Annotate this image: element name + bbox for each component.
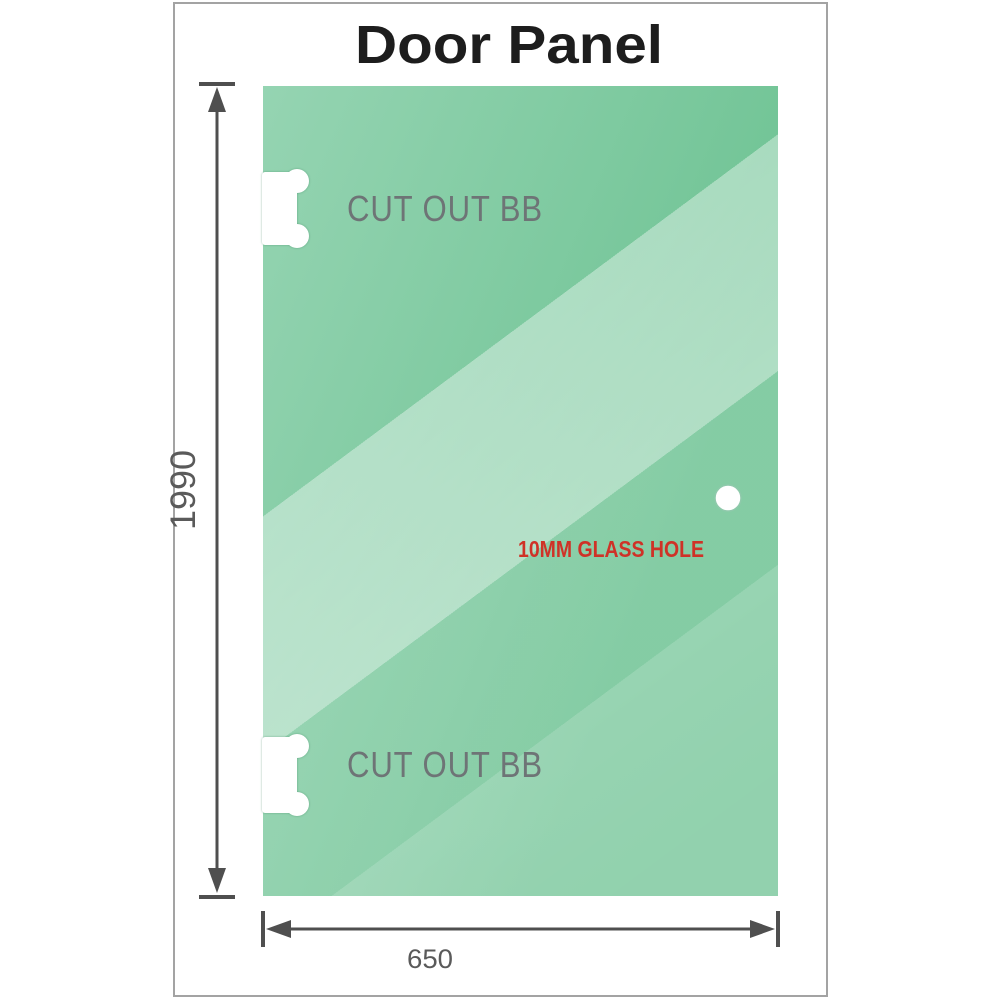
cutout-top-label: CUT OUT BB: [347, 188, 543, 229]
door-panel-diagram: Door Panel CUT OUT BB CUT OUT BB 10MM GL…: [0, 0, 1000, 1000]
cutout-bottom-label: CUT OUT BB: [347, 744, 543, 785]
cutout-bottom-lobe-upper: [285, 734, 309, 758]
height-dimension-value: 1990: [164, 450, 203, 530]
page-title: Door Panel: [355, 15, 663, 75]
glass-hole: [715, 485, 741, 511]
cutout-bottom-lobe-lower: [285, 792, 309, 816]
diagram-canvas: Door Panel CUT OUT BB CUT OUT BB 10MM GL…: [0, 0, 1000, 1000]
cutout-top-lobe-lower: [285, 224, 309, 248]
cutout-top-lobe-upper: [285, 169, 309, 193]
width-dimension-value: 650: [407, 944, 453, 974]
glass-hole-label: 10MM GLASS HOLE: [518, 536, 704, 562]
